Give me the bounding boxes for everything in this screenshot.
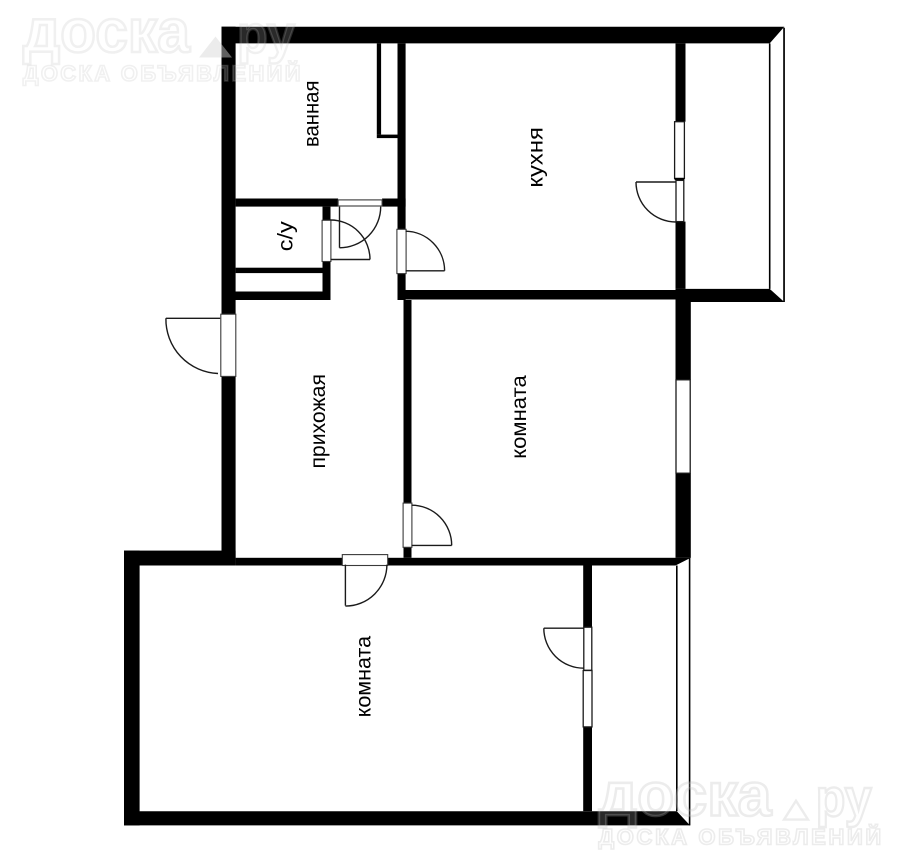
- svg-text:ДОСКА ОБЪЯВЛЕНИЙ: ДОСКА ОБЪЯВЛЕНИЙ: [599, 825, 882, 850]
- svg-text:ру: ру: [237, 6, 295, 65]
- svg-text:комната: комната: [508, 375, 531, 459]
- svg-text:ДОСКА ОБЪЯВЛЕНИЙ: ДОСКА ОБЪЯВЛЕНИЙ: [23, 61, 301, 86]
- svg-text:комната: комната: [352, 636, 375, 718]
- svg-text:с/у: с/у: [275, 221, 298, 252]
- svg-text:доска: доска: [23, 0, 191, 65]
- svg-text:ру: ру: [816, 769, 872, 828]
- svg-text:прихожая: прихожая: [307, 374, 330, 469]
- svg-text:доска: доска: [599, 761, 773, 830]
- svg-text:кухня: кухня: [525, 127, 548, 188]
- svg-text:ванная: ванная: [301, 81, 324, 148]
